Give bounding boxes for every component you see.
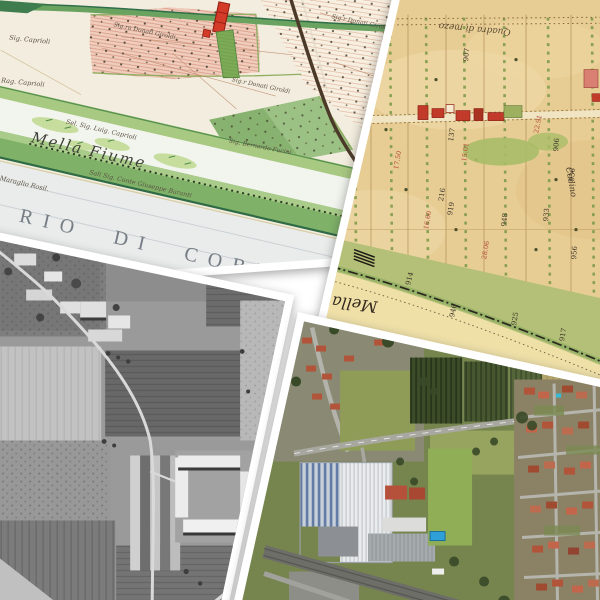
bw-aerial-art [0, 231, 285, 600]
town-right [514, 380, 600, 600]
parcel-number: 936 [568, 167, 577, 181]
truck [432, 569, 444, 575]
parcel-number: 933 [542, 208, 551, 222]
meadow [528, 133, 568, 151]
parcel-number: 948 [500, 213, 509, 227]
lawn [428, 449, 472, 546]
swimming-pool [430, 532, 445, 541]
parcel-number: 907 [462, 48, 471, 62]
parcel-number: 906 [552, 137, 561, 152]
meadow [463, 138, 539, 166]
map-collage: RIO DI COBIA Mella Fiume Sel. Sig. Luig.… [0, 0, 600, 600]
parcel-number: 956 [570, 245, 579, 260]
solar-roof [300, 463, 340, 527]
backyard-pool [556, 394, 561, 398]
